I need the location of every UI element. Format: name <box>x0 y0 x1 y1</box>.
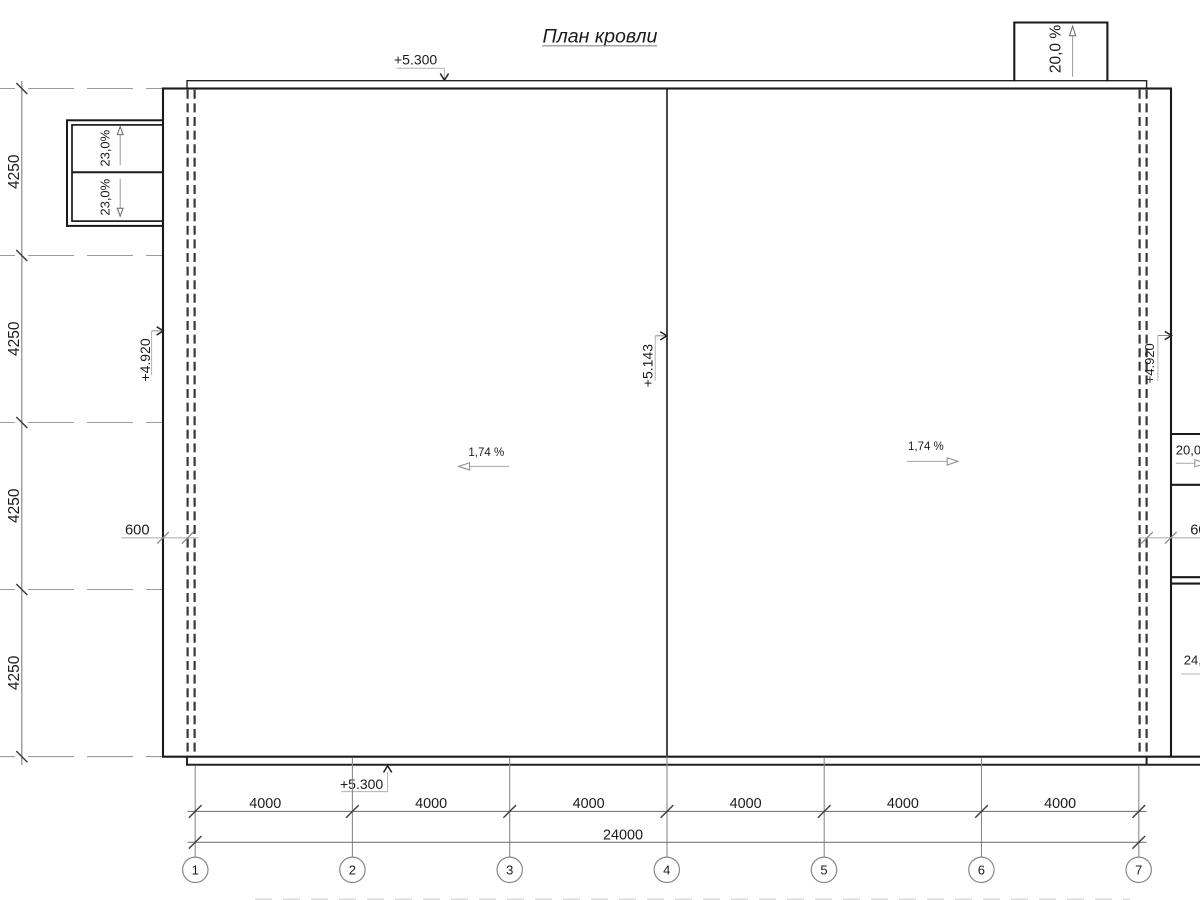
svg-text:4250: 4250 <box>6 488 23 523</box>
svg-text:1,74 %: 1,74 % <box>468 447 504 459</box>
svg-text:4000: 4000 <box>249 796 281 812</box>
svg-text:+5.143: +5.143 <box>640 344 656 387</box>
svg-text:24,7: 24,7 <box>1184 653 1200 668</box>
svg-text:6: 6 <box>978 862 985 877</box>
svg-text:4000: 4000 <box>887 796 919 812</box>
svg-text:+5.300: +5.300 <box>394 52 437 68</box>
svg-text:24000: 24000 <box>603 828 643 844</box>
svg-text:20,0 %: 20,0 % <box>1176 442 1200 457</box>
svg-text:+5.300: +5.300 <box>340 776 383 792</box>
svg-text:4: 4 <box>663 862 670 877</box>
svg-text:2: 2 <box>349 862 356 877</box>
svg-text:+4.920: +4.920 <box>1142 343 1157 383</box>
svg-text:23,0%: 23,0% <box>97 129 112 166</box>
svg-text:4250: 4250 <box>6 154 23 189</box>
svg-text:1: 1 <box>192 862 199 877</box>
svg-text:+4.920: +4.920 <box>137 338 153 381</box>
svg-text:4000: 4000 <box>730 796 762 812</box>
svg-text:3: 3 <box>506 862 513 877</box>
svg-text:5: 5 <box>820 862 827 877</box>
svg-text:20,0 %: 20,0 % <box>1048 25 1065 73</box>
svg-text:4000: 4000 <box>1044 796 1076 812</box>
svg-text:7: 7 <box>1135 862 1142 877</box>
svg-text:600: 600 <box>1190 523 1200 539</box>
svg-text:1,74 %: 1,74 % <box>908 441 944 453</box>
svg-text:4250: 4250 <box>6 655 23 690</box>
svg-text:План кровли: План кровли <box>543 26 658 48</box>
svg-text:4250: 4250 <box>6 321 23 356</box>
svg-text:4000: 4000 <box>415 796 447 812</box>
svg-text:600: 600 <box>125 523 150 539</box>
svg-text:4000: 4000 <box>573 796 605 812</box>
svg-text:23,0%: 23,0% <box>97 178 112 215</box>
